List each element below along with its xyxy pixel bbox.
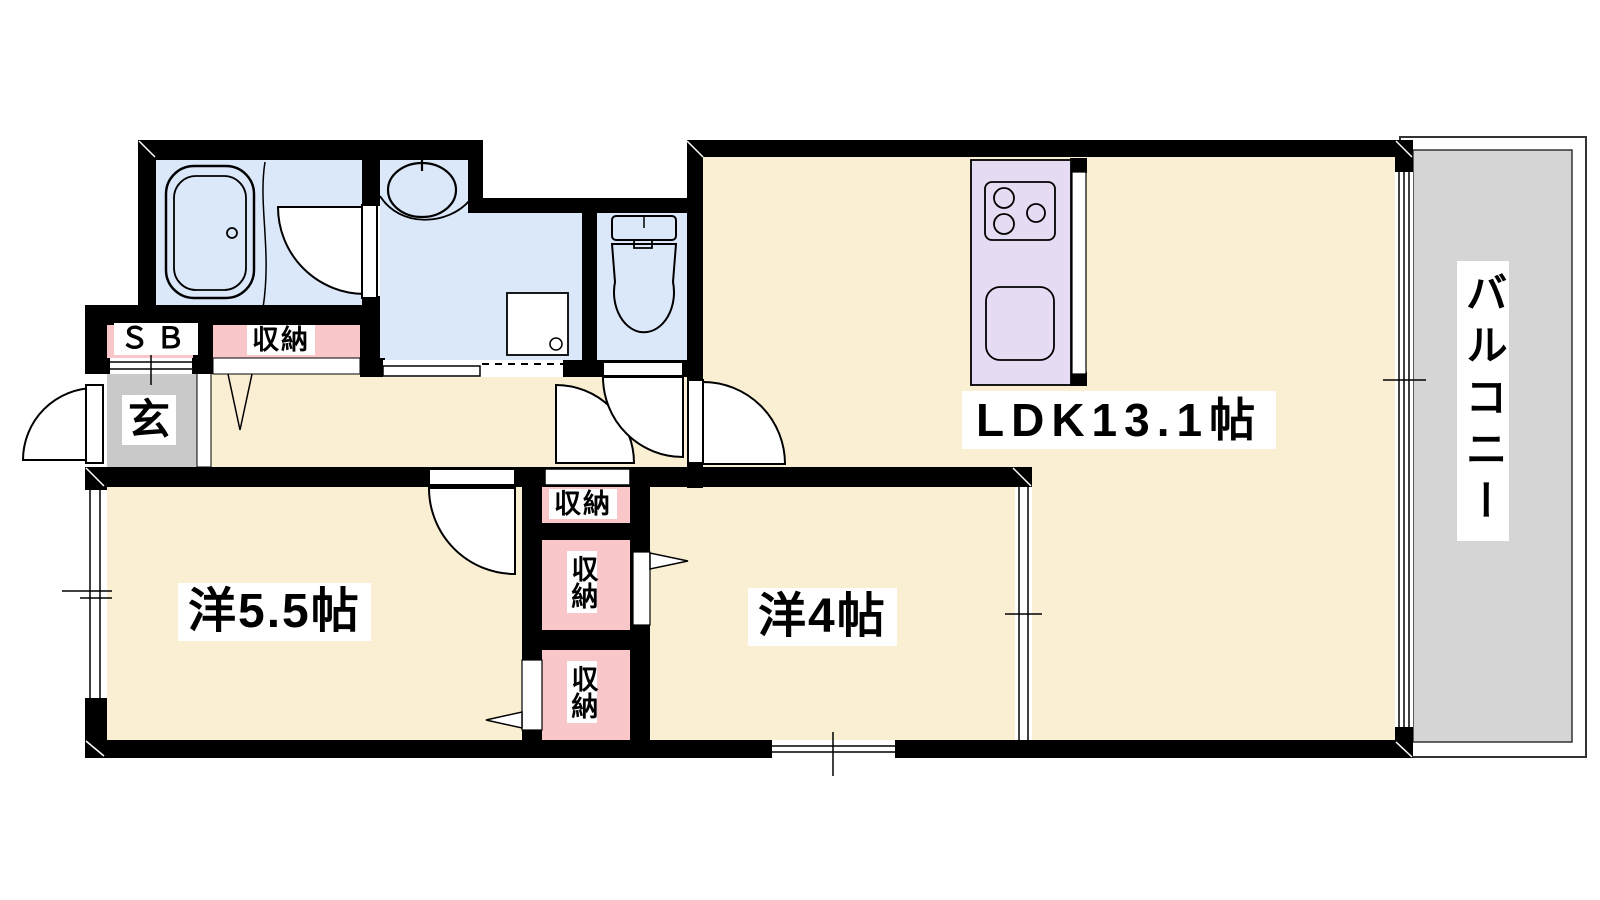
washing-machine-pan [507,293,568,355]
label-closet-bottom: 収納 [567,661,597,723]
label-entrance: 玄 [122,395,176,445]
label-balcony: バルコニー [1457,261,1509,541]
washroom-sliding-door [383,360,563,377]
floor-plan: LDK13.1帖 洋5.5帖 洋4帖 バルコニー 玄 ＳＢ 収納 収納 収納 収… [0,0,1600,900]
room-washroom [380,160,483,362]
label-western-4: 洋4帖 [748,588,897,646]
label-ldk: LDK13.1帖 [962,391,1276,449]
entrance-step [197,373,211,467]
label-western-5-5: 洋5.5帖 [178,583,371,641]
label-closet-hall: 収納 [247,325,315,355]
entrance-door [23,385,103,463]
floor-plan-drawing [0,0,1600,900]
kitchen-unit [971,160,1086,385]
window-west [62,490,112,698]
label-closet-middle: 収納 [567,551,597,613]
label-closet-top: 収納 [549,489,617,519]
label-shoe-box: ＳＢ [114,323,198,355]
closet-top-door [545,469,630,485]
